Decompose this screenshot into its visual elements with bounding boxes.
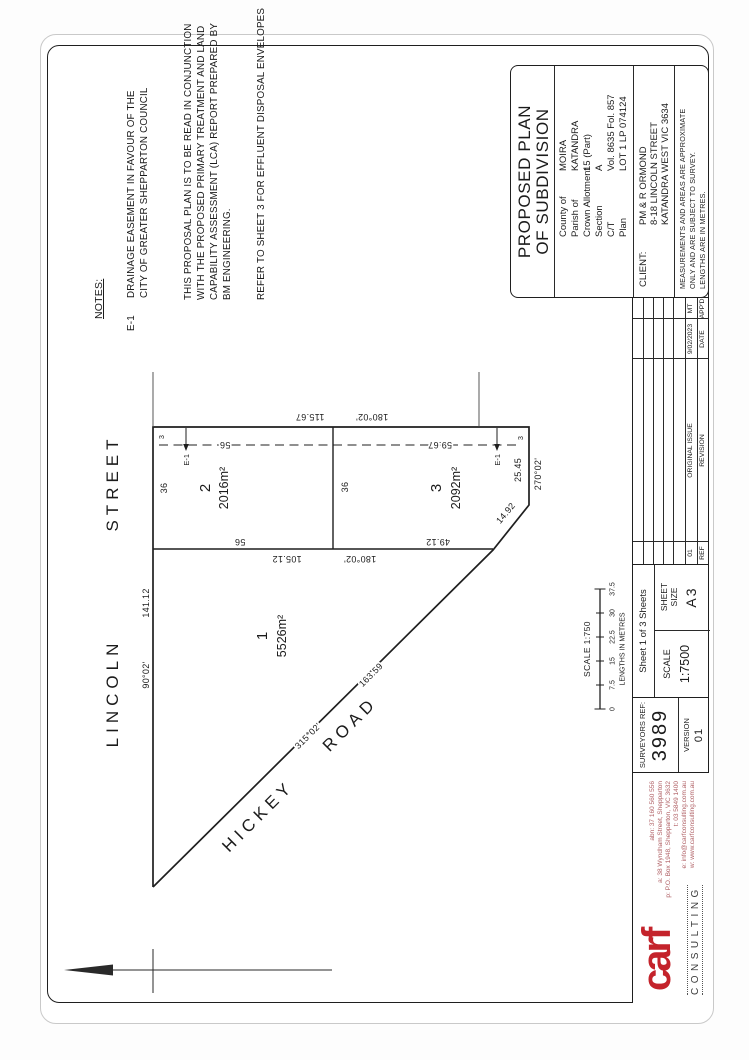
notes-para-line-1: THIS PROPOSAL PLAN IS TO BE READ IN CONJ…: [184, 23, 195, 300]
surveyors-ref-label: SURVEYORS REF:: [638, 698, 647, 772]
dim-lot1-east: 105.12: [272, 554, 301, 564]
easement-label-b: E-1: [493, 454, 502, 466]
lot1-area: 5526m²: [275, 615, 289, 657]
revision-row-description: ORIGINAL ISSUE: [687, 359, 694, 542]
sheet-size-label-1: SHEET: [659, 563, 669, 631]
scale-bar-units: LENGTHS IN METRES: [620, 612, 627, 685]
sheet-count: Sheet 1 of 3 Sheets: [638, 565, 649, 697]
scale-bar-title: SCALE 1:750: [582, 621, 592, 677]
version-label: VERSION: [682, 698, 691, 772]
client-line-1: PM & R ORMOND: [639, 146, 649, 225]
brand-contact-phone: t: 03 5849 1400: [673, 781, 681, 826]
brand-subtitle: CONSULTING: [687, 885, 703, 995]
scale-tick-1: 7.5: [610, 680, 617, 690]
divider: [678, 698, 679, 772]
notes-heading: NOTES:: [94, 279, 106, 319]
street-name-street: STREET: [103, 434, 122, 531]
client-line-2: 8-18 LINCOLN STREET: [650, 122, 660, 225]
notes-e1-line-2: CITY OF GREATER SHEPPARTON COUNCIL: [140, 87, 151, 298]
disclaimer-line-1: MEASUREMENTS AND AREAS ARE APPROXIMATE: [679, 109, 687, 289]
disclaimer-line-3: LENGTHS ARE IN METRES.: [699, 191, 707, 289]
divider: [554, 66, 555, 297]
property-value: A: [594, 165, 605, 171]
dim-lot3-side: 49.12: [426, 537, 450, 547]
revision-table: 01 ORIGINAL ISSUE 9/02/2023 MT REF REVIS…: [632, 297, 709, 565]
disclaimer-line-2: ONLY AND ARE SUBJECT TO SURVEY.: [689, 152, 697, 289]
scale-bar: SCALE 1:750 0 7.5 15 22.5 30 37.5 LENGTH…: [582, 582, 627, 711]
revision-header-revision: REVISION: [699, 359, 706, 542]
easement-arrow-b: [494, 428, 500, 451]
lot-boundary-outline: [153, 427, 529, 887]
scale-value: 1:7500: [678, 631, 692, 697]
brand-block: carf CONSULTING abn: 37 160 560 556 a: 3…: [632, 772, 709, 1003]
revision-header-date: DATE: [699, 319, 706, 359]
easement-arrow-a: [183, 428, 189, 451]
brand-logo: carf: [635, 930, 679, 991]
notes-e1-line-1: DRAINAGE EASEMENT IN FAVOUR OF THE: [127, 90, 138, 298]
revision-row-appd: MT: [687, 298, 694, 319]
lot2-area: 2016m²: [217, 467, 231, 509]
dim-lot2-frontage: 36: [159, 483, 169, 494]
dim-easement-width-a: 3: [159, 435, 166, 439]
street-name-lincoln: LINCOLN: [103, 639, 122, 748]
revision-header-ref: REF: [699, 542, 706, 564]
notes-para-line-3: CAPABILITY ASSESSMENT (LCA) REPORT PREPA…: [210, 23, 221, 300]
client-label: CLIENT:: [639, 252, 649, 287]
dim-east-boundary-bearing: 180°02': [356, 412, 388, 422]
property-value: Vol. 8635 Fol. 857: [606, 94, 617, 171]
dim-lot3-south-bearing: 270°02': [533, 458, 543, 490]
surveyors-ref-value: 3989: [649, 698, 672, 772]
table-line: [643, 298, 644, 564]
property-value: 15 (Part): [582, 134, 593, 171]
title-line-1: PROPOSED PLAN: [516, 66, 535, 297]
notes-refer-line: REFER TO SHEET 3 FOR EFFLUENT DISPOSAL E…: [257, 8, 268, 300]
dim-road-bearing: 315°02': [293, 721, 323, 751]
brand-contact-email: e: info@carfconsulting.com.au: [681, 781, 689, 869]
dim-lot1-east-bearing: 180°02': [344, 554, 376, 564]
property-label: Section: [594, 205, 605, 237]
dim-lot3-frontage: 36: [340, 482, 350, 493]
scale-tick-0: 0: [610, 707, 617, 711]
scale-tick-5: 37.5: [610, 582, 617, 596]
title-block: PROPOSED PLAN OF SUBDIVISION County of M…: [510, 65, 709, 298]
dim-lot3-south: 25.45: [513, 458, 523, 482]
dim-easement-lot2: 56: [220, 440, 231, 450]
property-label: Parish of: [570, 200, 581, 238]
dim-east-boundary: 115.67: [296, 412, 325, 422]
revision-header-appd: APP'D: [699, 298, 706, 319]
notes-para-line-4: BM ENGINEERING.: [223, 208, 234, 300]
dim-lot1-frontage: 141.12: [141, 588, 151, 617]
surveyor-block: SURVEYORS REF: 3989 VERSION 01: [632, 697, 709, 773]
brand-contact-web: w: www.carfconsulting.com.au: [689, 781, 697, 868]
brand-contact-abn: abn: 37 160 560 556: [649, 781, 657, 841]
dim-lot1-frontage-bearing: 90°02': [141, 661, 151, 688]
property-label: C/T: [606, 222, 617, 237]
dim-lot2-side: 56: [235, 537, 246, 547]
lot1-number: 1: [254, 632, 271, 640]
property-label: Crown Allotment: [582, 168, 593, 237]
notes-para-line-2: WITH THE PROPOSED PRIMARY TREATMENT AND …: [197, 26, 208, 300]
lot3-area: 2092m²: [449, 467, 463, 509]
north-arrow: [64, 949, 332, 993]
lot3-number: 3: [428, 484, 445, 492]
road-name-hickey: HICKEY: [218, 776, 297, 855]
title-line-2: OF SUBDIVISION: [534, 66, 553, 297]
dim-easement-width-b: 3: [518, 436, 525, 440]
property-value: MOIRA: [558, 140, 569, 171]
road-name-road: ROAD: [319, 693, 381, 755]
scale-tick-4: 30: [610, 609, 617, 617]
brand-contact-postal: p: P.O. Box 1948, Shepparton, VIC 3632: [665, 781, 673, 898]
sheet-size-label-2: SIZE: [669, 563, 679, 631]
notes-e1-ref: E-1: [127, 315, 138, 331]
scale-label: SCALE: [662, 631, 672, 697]
table-line: [697, 298, 698, 564]
version-value: 01: [693, 698, 705, 772]
dim-easement-lot3: 59.67: [428, 440, 452, 450]
brand-contact-address: a: 38 Wyndham Street, Shepparton: [657, 781, 665, 883]
sheet-info-block: Sheet 1 of 3 Sheets SCALE 1:7500 SHEET S…: [632, 564, 709, 698]
table-line: [685, 298, 686, 564]
table-line: [673, 298, 674, 564]
client-line-3: KATANDRA WEST VIC 3634: [661, 103, 671, 225]
divider: [633, 66, 634, 297]
table-line: [653, 298, 654, 564]
divider: [674, 66, 675, 297]
table-line: [663, 298, 664, 564]
easement-label-a: E-1: [182, 454, 191, 466]
revision-row-ref: 01: [687, 542, 694, 564]
divider: [654, 565, 655, 697]
property-value: KATANDRA: [570, 121, 581, 171]
subdivision-plan-sheet: SCALE 1:750 0 7.5 15 22.5 30 37.5 LENGTH…: [0, 0, 749, 1060]
sheet-size-value: A3: [683, 563, 699, 631]
scale-tick-2: 15: [610, 657, 617, 665]
property-label: County of: [558, 196, 569, 237]
lot2-number: 2: [197, 484, 214, 492]
scale-tick-3: 22.5: [610, 630, 617, 644]
property-value: LOT 1 LP 074124: [618, 96, 629, 171]
revision-row-date: 9/02/2023: [687, 319, 694, 359]
property-label: Plan: [618, 218, 629, 237]
dim-road-length: 163.59: [357, 661, 385, 689]
dim-bevel: 14.92: [494, 501, 517, 526]
